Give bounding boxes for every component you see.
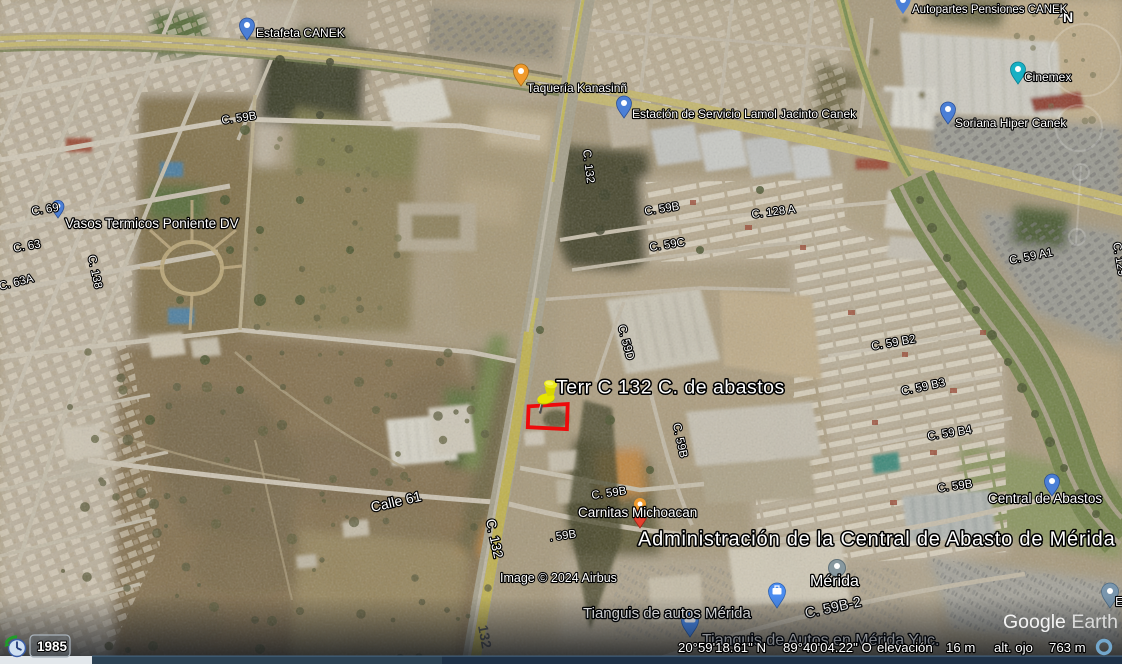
svg-text:Google Earth: Google Earth [1003, 611, 1118, 633]
svg-text:Mérida: Mérida [810, 573, 859, 590]
svg-text:20°59'18.61" N: 20°59'18.61" N [678, 640, 766, 655]
svg-text:1985: 1985 [37, 639, 68, 654]
svg-text:89°40'04.22" O: 89°40'04.22" O [783, 640, 872, 655]
svg-text:Terr C 132 C. de abastos: Terr C 132 C. de abastos [556, 377, 785, 399]
svg-text:Autopartes Pensiones CANEK: Autopartes Pensiones CANEK [912, 4, 1068, 16]
svg-text:763 m: 763 m [1049, 640, 1086, 655]
svg-text:Image © 2024 Airbus: Image © 2024 Airbus [500, 571, 617, 585]
svg-text:Central de Abastos: Central de Abastos [988, 491, 1102, 506]
svg-text:elevación: elevación [877, 640, 933, 655]
svg-text:Administración de la Central d: Administración de la Central de Abasto d… [638, 529, 1116, 551]
svg-text:alt. ojo: alt. ojo [994, 640, 1033, 655]
svg-text:Carnitas Michoacan: Carnitas Michoacan [578, 505, 697, 520]
svg-text:Vasos Termicos Poniente DV: Vasos Termicos Poniente DV [65, 216, 239, 231]
svg-text:Cinemex: Cinemex [1024, 70, 1071, 84]
svg-text:Estación de Servicio Lamol Jac: Estación de Servicio Lamol Jacinto Canek [632, 107, 857, 121]
svg-text:Soriana Hiper Canek: Soriana Hiper Canek [955, 116, 1067, 130]
svg-text:Taquería Kanasinñ: Taquería Kanasinñ [527, 81, 627, 95]
svg-text:Estafeta CANEK: Estafeta CANEK [256, 26, 345, 40]
svg-text:16 m: 16 m [946, 640, 975, 655]
